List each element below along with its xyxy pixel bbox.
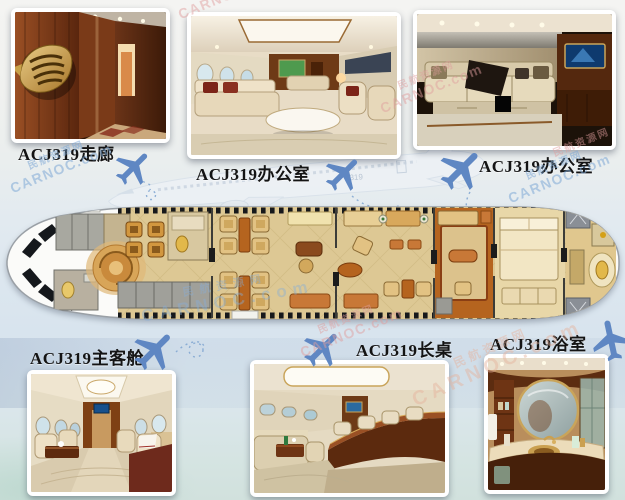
airplane-icon <box>436 144 488 196</box>
forward-credenza <box>118 282 210 308</box>
bedroom-zone <box>495 208 565 318</box>
writing-desk <box>296 242 322 256</box>
caption-bathroom: ACJ319浴室 <box>490 330 587 355</box>
airplane-icon <box>130 326 180 376</box>
photo-acj319-office-1 <box>187 12 401 159</box>
photo-acj319-corridor <box>11 8 170 143</box>
club-table-bottom <box>239 276 250 310</box>
caption-long-table: ACJ319长桌 <box>356 336 453 361</box>
caption-office-1: ACJ319办公室 <box>196 160 310 185</box>
sketch-door <box>397 160 407 173</box>
entry-door-mid <box>232 311 258 319</box>
caption-office-2: ACJ319办公室 <box>479 152 593 177</box>
airplane-icon <box>300 326 346 372</box>
photo-acj319-long-table <box>250 360 449 497</box>
photo-acj319-main-cabin <box>27 370 176 496</box>
airplane-icon <box>322 152 366 196</box>
photo-acj319-bathroom <box>484 354 609 494</box>
photo-acj319-office-2 <box>413 10 616 150</box>
office-desk <box>449 250 477 262</box>
club-table-top <box>239 218 250 252</box>
entry-door-front <box>74 204 100 212</box>
airplane-icon <box>588 316 625 364</box>
caption-corridor: ACJ319走廊 <box>18 140 115 165</box>
gold-sink <box>596 261 608 279</box>
airplane-icon <box>112 146 156 190</box>
caption-main-cabin: ACJ319主客舱 <box>30 344 144 369</box>
aft-bathroom-zone <box>566 208 616 318</box>
office-zone <box>435 208 493 318</box>
sideboard-table <box>288 212 332 225</box>
cabin-floorplan <box>0 198 625 328</box>
